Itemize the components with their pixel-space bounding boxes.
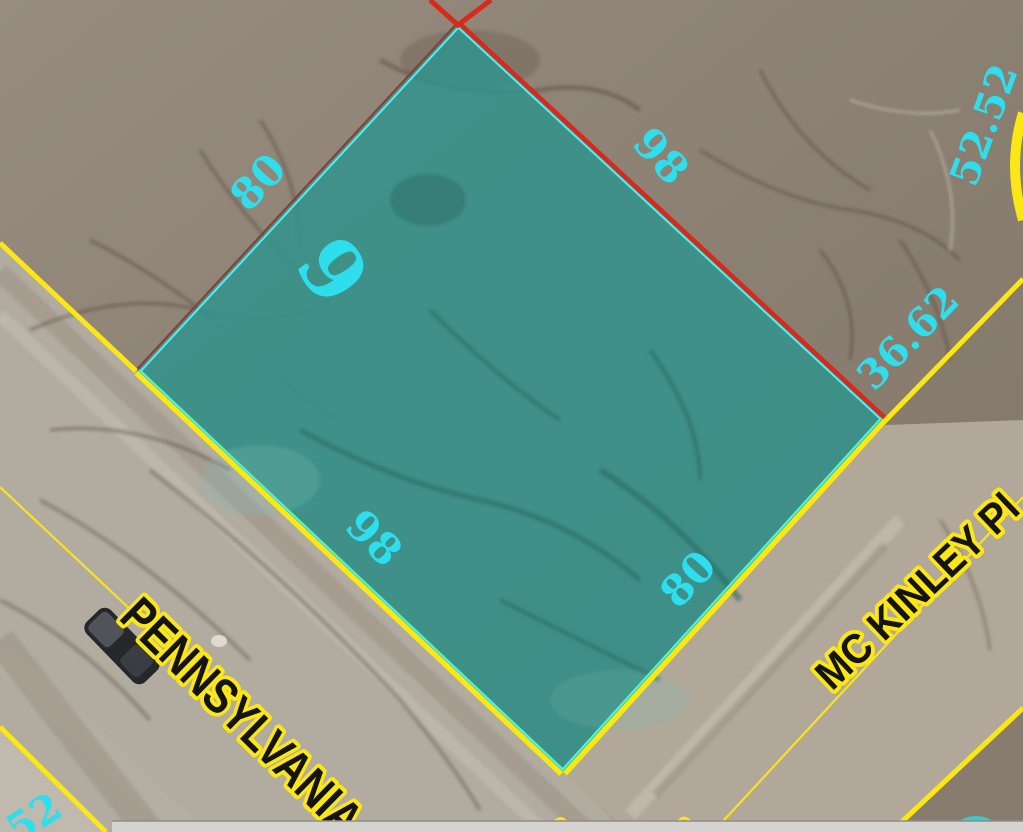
- parcel-map: PENNSYLVANIA MC KINLEY Pl 80 98 98 80 36…: [0, 0, 1023, 832]
- parcel-dark-patch: [390, 174, 466, 226]
- light-object-on-lawn: [211, 635, 227, 647]
- map-canvas[interactable]: PENNSYLVANIA MC KINLEY Pl 80 98 98 80 36…: [0, 0, 1023, 832]
- parcel-light-patch-2: [550, 670, 690, 730]
- bottom-ui-strip: [112, 821, 1023, 832]
- parcel-light-patch-1: [200, 445, 320, 515]
